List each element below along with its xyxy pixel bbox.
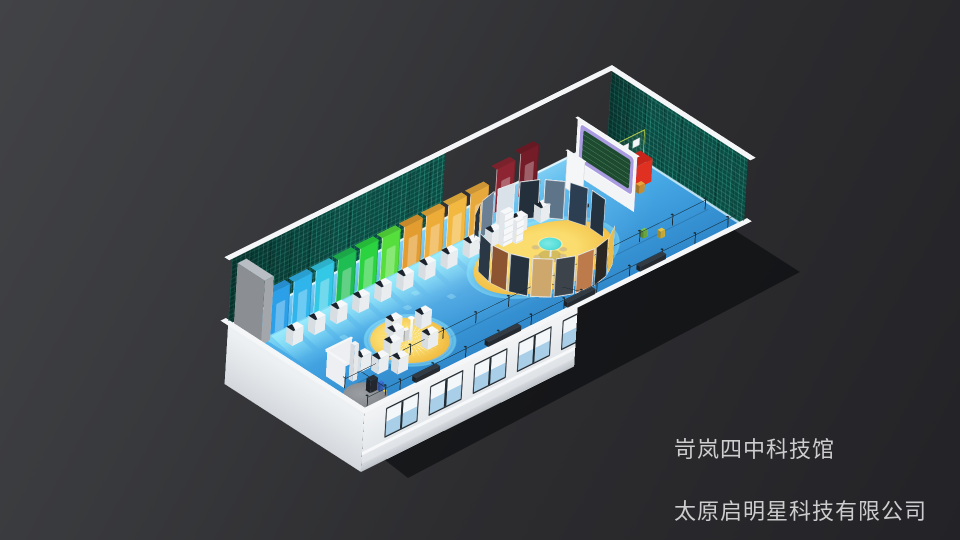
booth-notch — [319, 278, 330, 311]
booth-notch — [297, 289, 308, 322]
booth-notch — [385, 245, 396, 278]
watermark-line-2: 太原启明星科技有限公司 — [674, 494, 927, 526]
booth-notch — [451, 212, 462, 245]
booth-notch — [429, 223, 440, 256]
arc-panel — [490, 244, 509, 291]
arc-panel — [508, 253, 530, 297]
booth-notch — [341, 267, 352, 300]
arc-panel — [553, 255, 576, 297]
arc-panel — [530, 258, 554, 298]
machine-frame-plate — [633, 137, 640, 148]
arc-panel — [568, 182, 589, 227]
booth-notch — [275, 300, 286, 333]
stage: 岢岚四中科技馆 太原启明星科技有限公司 — [0, 0, 960, 540]
booth-notch — [407, 234, 418, 267]
watermark-line-1: 岢岚四中科技馆 — [674, 432, 835, 464]
booth-notch — [363, 256, 374, 289]
